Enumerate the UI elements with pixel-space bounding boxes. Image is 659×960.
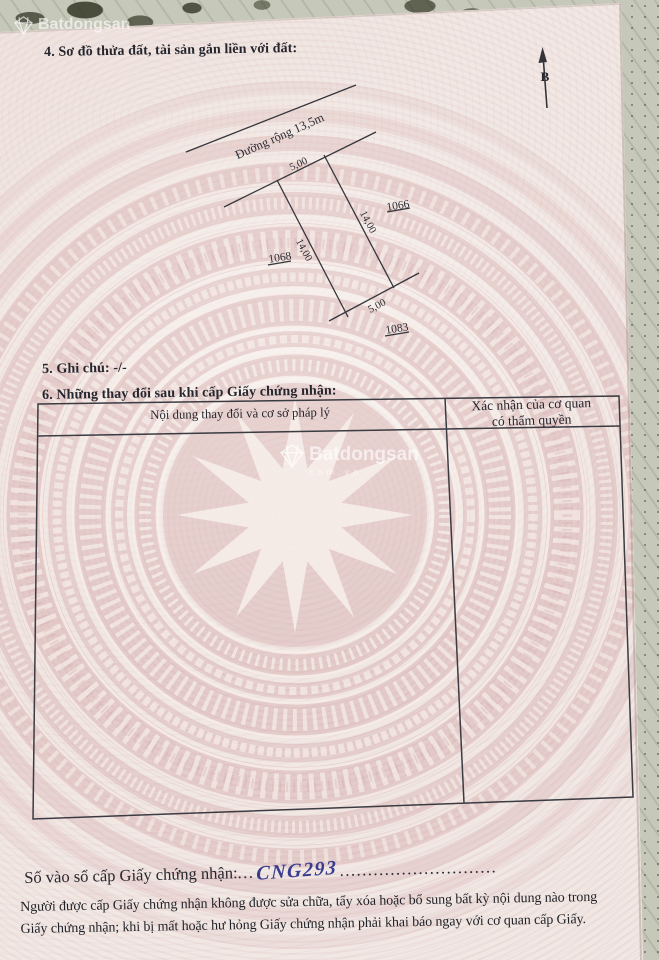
table-col2-header: Xác nhận của cơ quan có thẩm quyền [450, 394, 613, 430]
page-artwork: B Đường rộng 13,5m 5,00 14,00 14,00 5,00… [0, 0, 659, 960]
watermark-brand: Batdongsan [309, 444, 419, 465]
north-label: B [541, 69, 550, 84]
watermark-center: Batdongsan com.vn [280, 444, 419, 477]
certificate-page: B Đường rộng 13,5m 5,00 14,00 14,00 5,00… [0, 0, 659, 960]
bronze-drum-pattern [0, 87, 659, 943]
watermark-brand: Batdongsan [38, 16, 130, 34]
batdongsan-logo-icon [14, 16, 33, 35]
registry-label: Số vào sổ cấp Giấy chứng nhận: [24, 863, 238, 887]
registry-leader-dots: ... [237, 863, 254, 882]
adjacent-plot-right: 1066 [386, 198, 411, 213]
watermark-sub: com.vn [309, 467, 419, 477]
watermark-top-left: Batdongsan [14, 16, 130, 35]
batdongsan-logo-icon [280, 444, 304, 468]
adjacent-plot-left: 1068 [268, 250, 293, 265]
north-arrow: B [539, 47, 550, 108]
section5-note: 5. Ghi chú: -/- [42, 361, 127, 378]
photo-of-certificate: B Đường rộng 13,5m 5,00 14,00 14,00 5,00… [0, 0, 659, 960]
registry-trailing-dots: ............................ [339, 857, 497, 880]
